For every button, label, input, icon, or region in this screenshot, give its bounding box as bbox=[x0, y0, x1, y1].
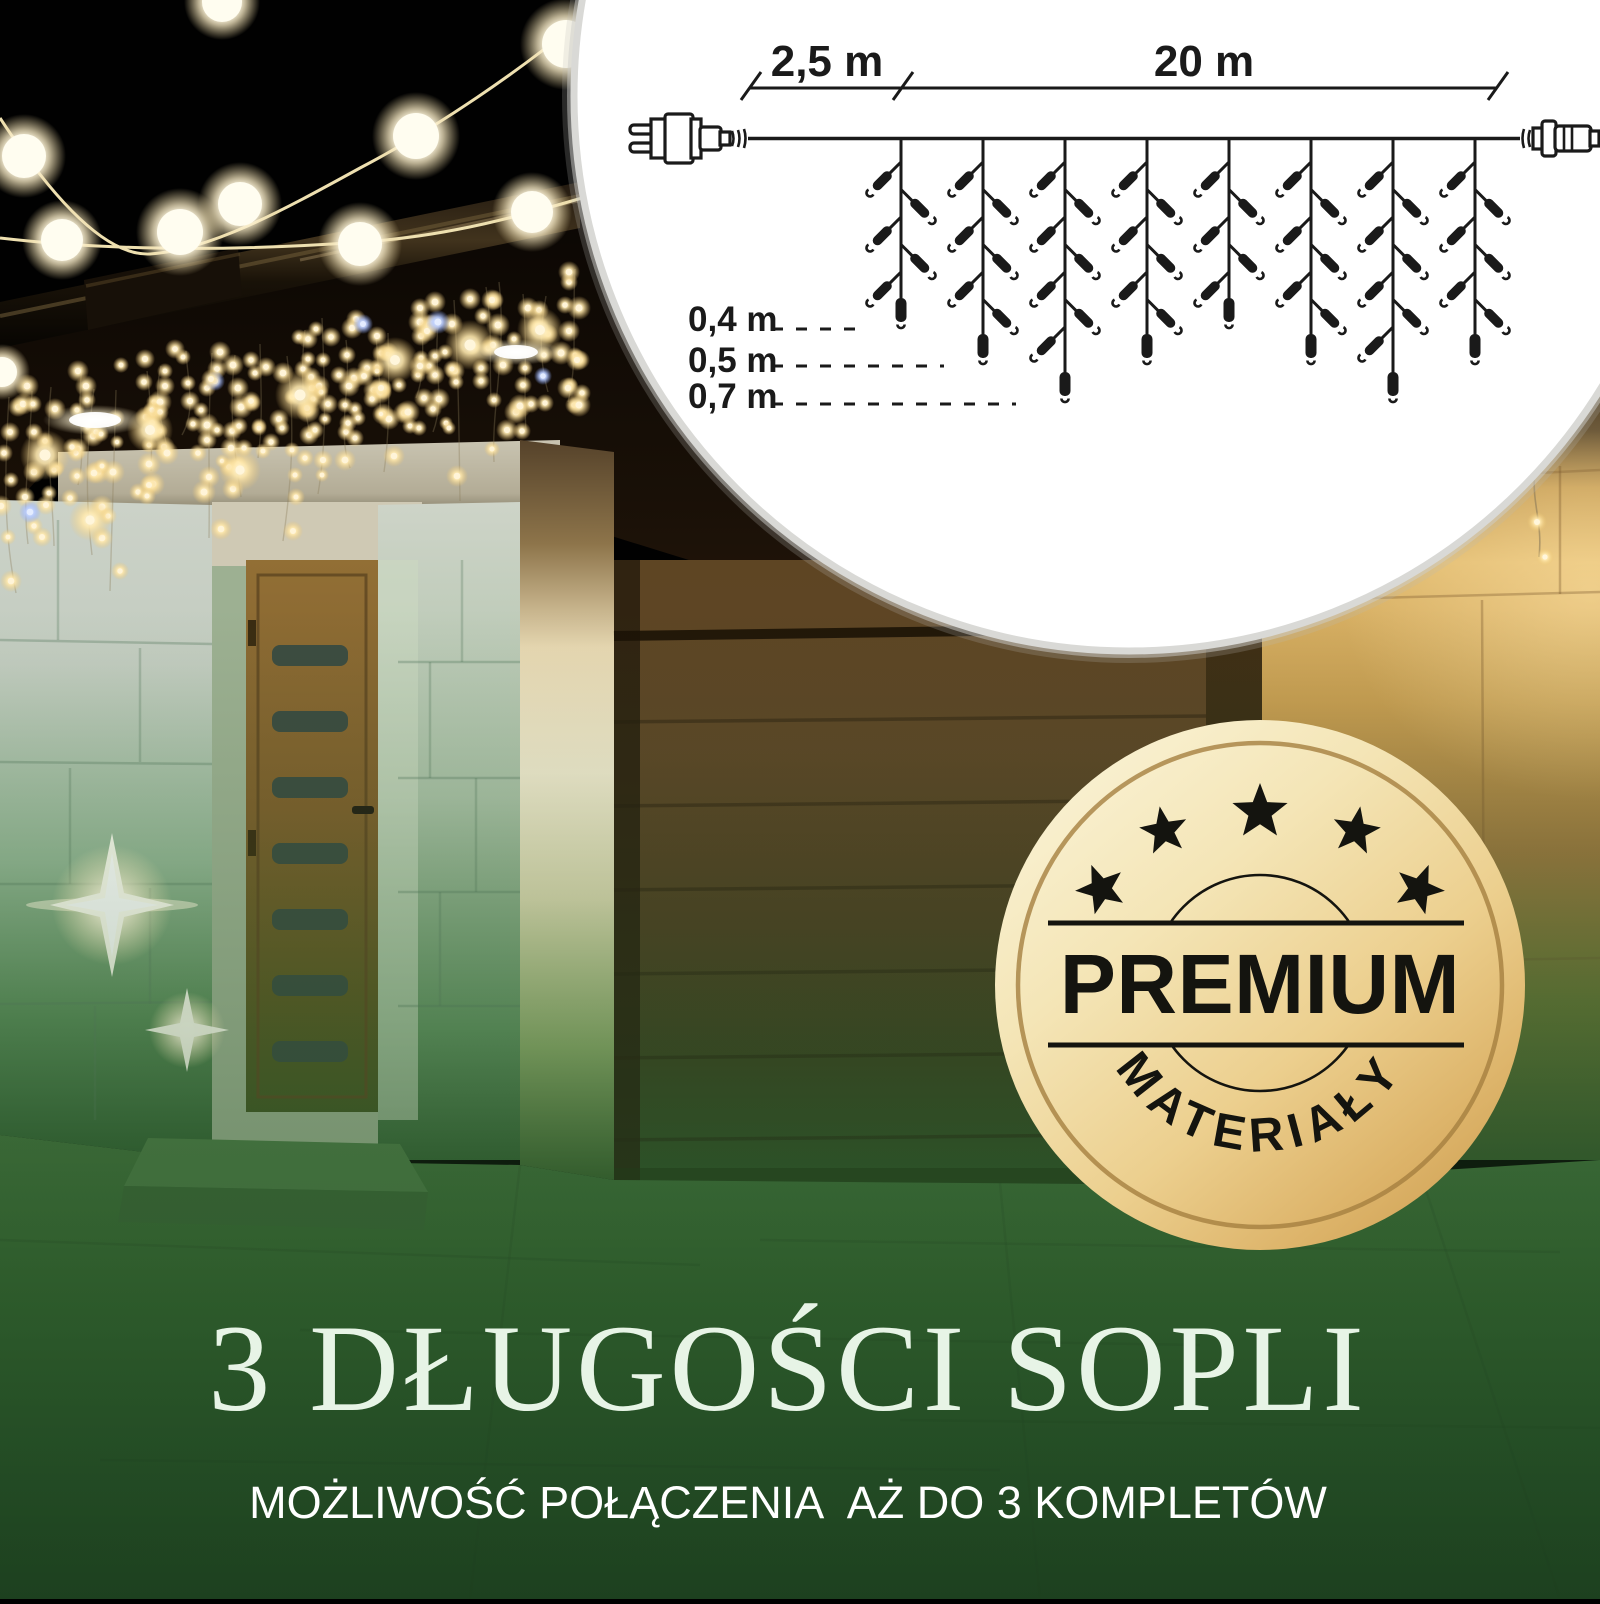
svg-text:0,5 m: 0,5 m bbox=[688, 341, 778, 380]
svg-text:20 m: 20 m bbox=[1154, 37, 1254, 86]
svg-text:0,7 m: 0,7 m bbox=[688, 377, 778, 416]
svg-text:2,5 m: 2,5 m bbox=[771, 37, 884, 86]
svg-text:MOŻLIWOŚĆ POŁĄCZENIA AŻ DO 3: MOŻLIWOŚĆ POŁĄCZENIA AŻ DO 3 KOMPLETÓW bbox=[249, 1477, 1327, 1528]
svg-text:0,4 m: 0,4 m bbox=[688, 300, 778, 339]
svg-text:3 DŁUGOŚCI SOPLI: 3 DŁUGOŚCI SOPLI bbox=[208, 1300, 1367, 1437]
svg-text:PREMIUM: PREMIUM bbox=[1060, 937, 1460, 1031]
